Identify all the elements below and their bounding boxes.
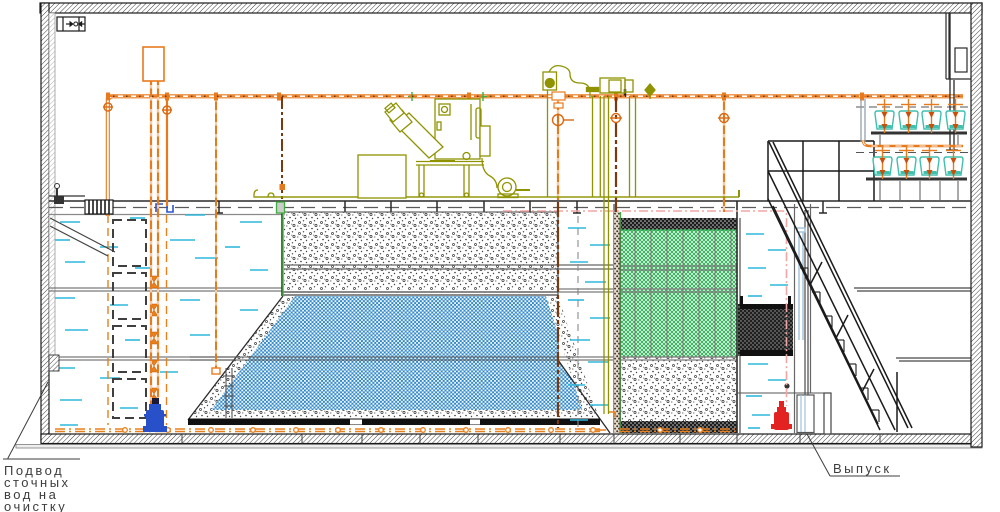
svg-text:Выпуск: Выпуск bbox=[833, 461, 892, 476]
svg-text:очистку: очистку bbox=[4, 499, 67, 512]
